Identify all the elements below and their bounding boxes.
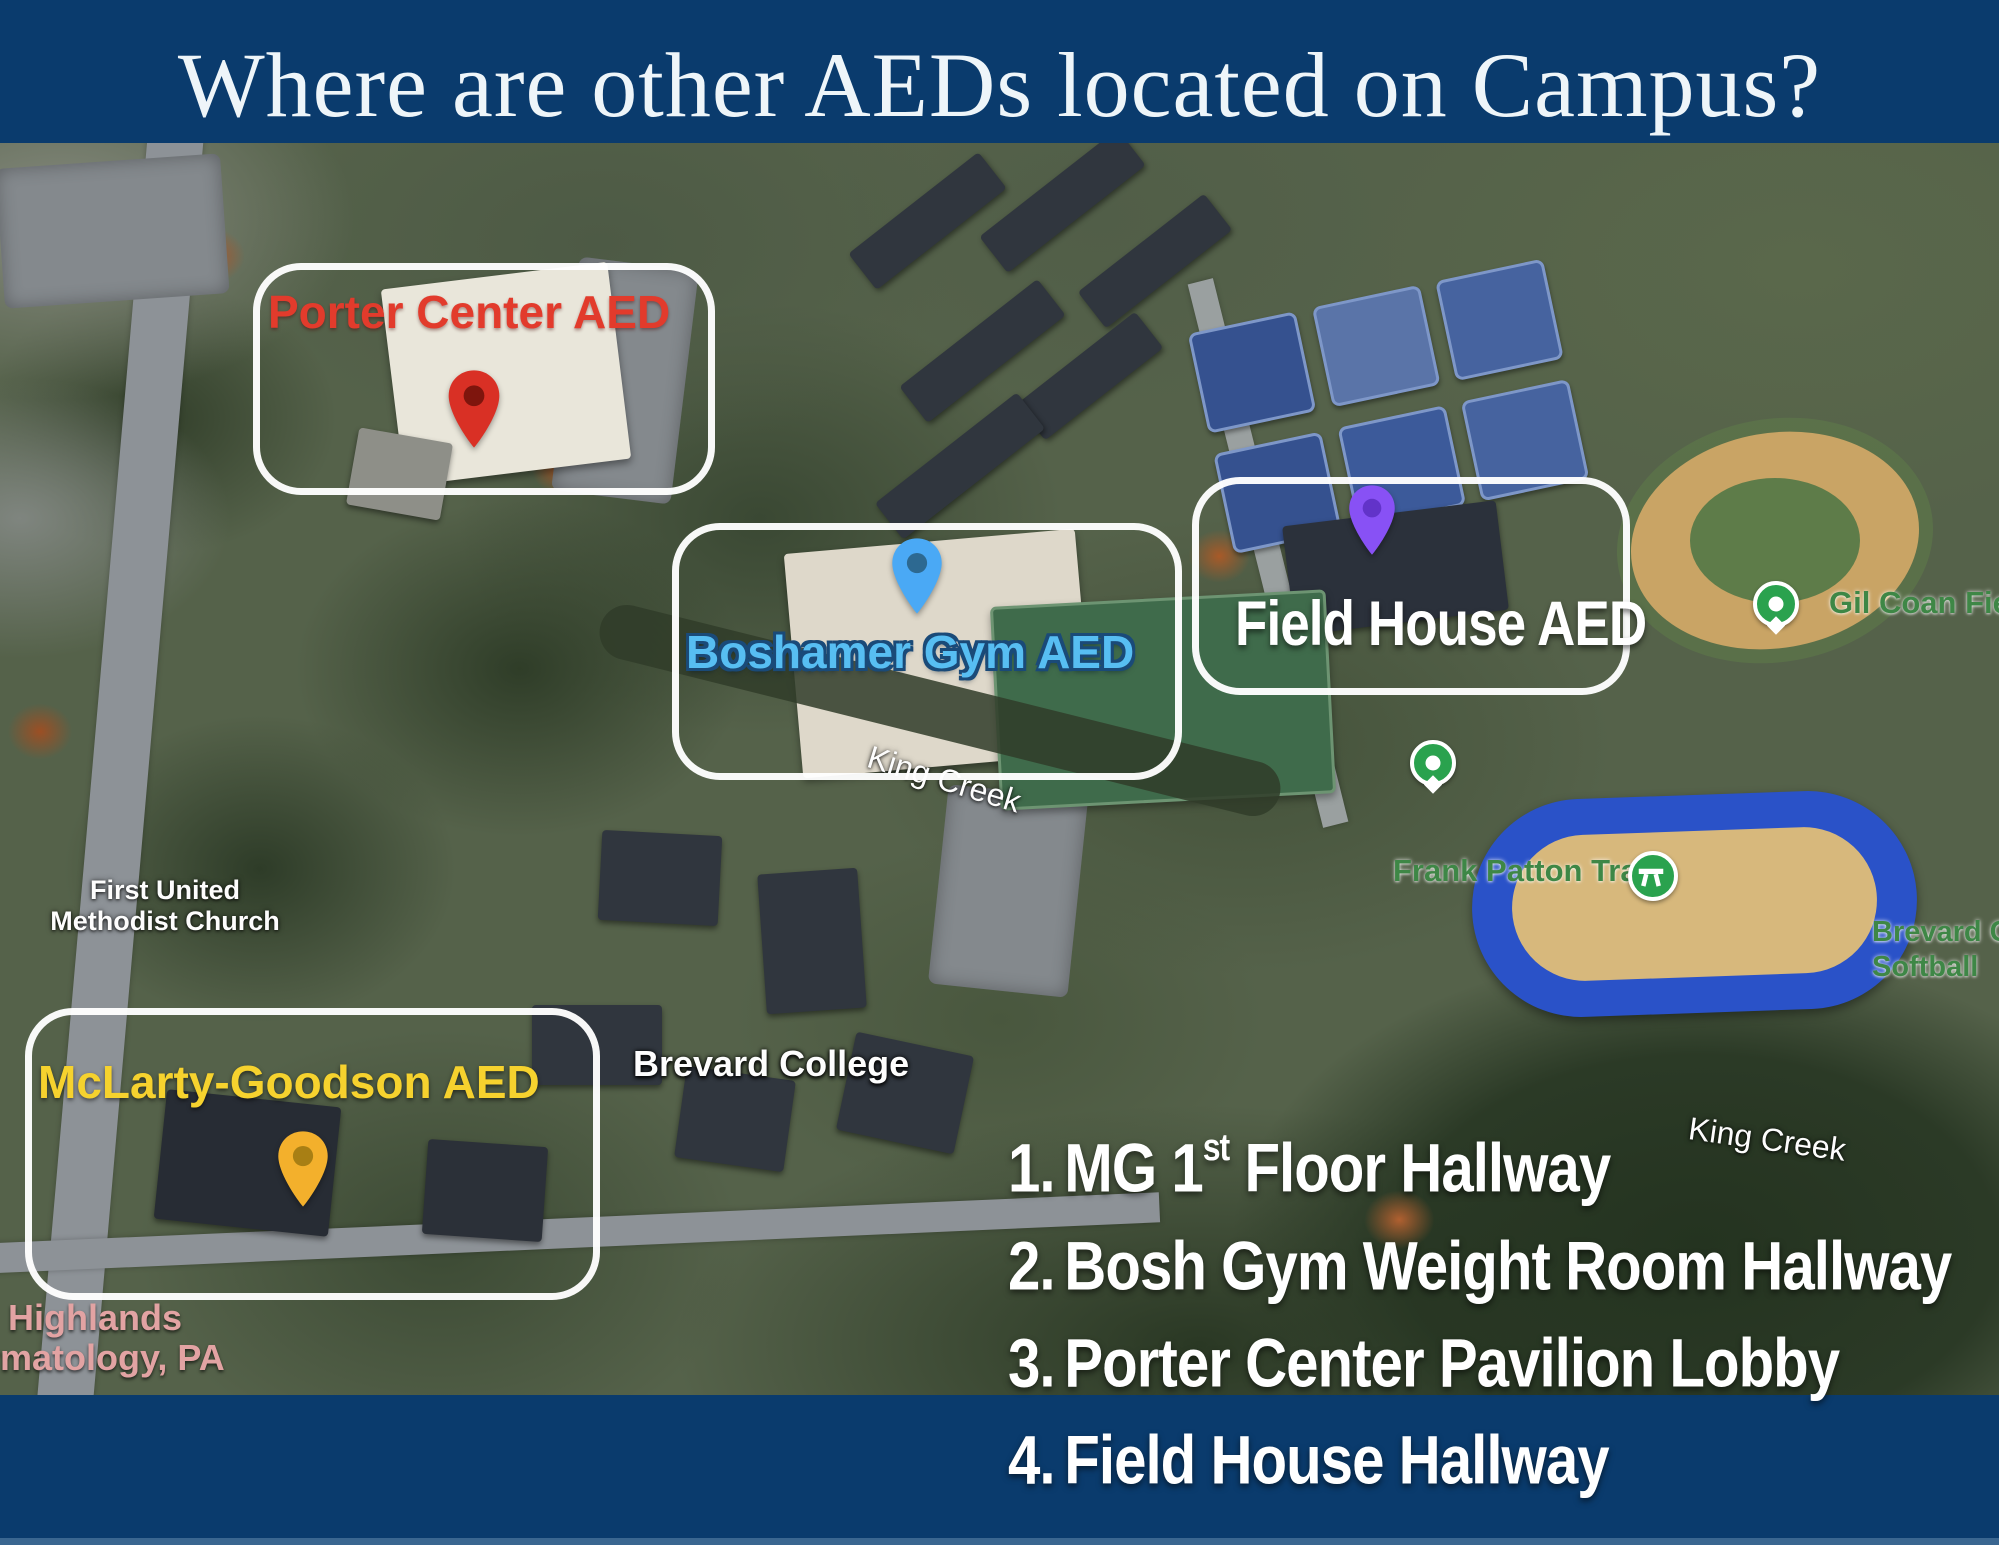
highlands-label-line2: rmatology, PA [0, 1338, 225, 1378]
church-label-line2: Methodist Church [45, 906, 285, 937]
campus-satellite-map: First United Methodist Church Brevard Co… [0, 143, 1999, 1395]
list-text: Field House Hallway [1064, 1420, 1608, 1499]
list-number: 1. [1008, 1128, 1055, 1207]
brevard-college-label: Brevard College [633, 1043, 909, 1085]
highlands-dermatology-label: Highlands rmatology, PA [0, 1298, 225, 1378]
picnic-table-icon [1630, 853, 1672, 895]
boshamer-aed-pin-icon [885, 536, 949, 616]
list-text: Porter Center Pavilion Lobby [1064, 1323, 1839, 1402]
aed-campus-poster: Where are other AEDs located on Campus? [0, 0, 1999, 1545]
bottom-edge-strip [0, 1538, 1999, 1545]
aed-list-item-3: 3. Porter Center Pavilion Lobby [1008, 1323, 1839, 1402]
fieldhouse-aed-pin-icon [1346, 481, 1398, 559]
softball-field-label: Brevard C Softball [1872, 915, 1999, 985]
list-number: 3. [1008, 1323, 1055, 1402]
ordinal-suffix: st [1203, 1126, 1230, 1169]
list-text: Bosh Gym Weight Room Hallway [1064, 1226, 1951, 1305]
campus-building [598, 830, 723, 926]
list-text: MG 1st Floor Hallway [1064, 1128, 1610, 1207]
boshamer-zone-label: Boshamer Gym AED [686, 625, 1134, 679]
road-marker-icon [1410, 740, 1456, 786]
softball-label-line1: Brevard C [1872, 915, 1999, 950]
tennis-court [1188, 311, 1317, 434]
marker-dot [1426, 756, 1441, 771]
list-number: 4. [1008, 1420, 1055, 1499]
aed-list-item-2: 2. Bosh Gym Weight Room Hallway [1008, 1226, 1951, 1305]
aed-list-item-4: 4. Field House Hallway [1008, 1420, 1609, 1499]
marker-dot [1769, 597, 1784, 612]
track-infield [1510, 825, 1880, 984]
porter-aed-pin-icon [445, 368, 503, 450]
church-label-line1: First United [45, 875, 285, 906]
porter-zone-label: Porter Center AED [268, 285, 670, 339]
dorm-building [979, 143, 1145, 273]
aed-list-item-1: 1. MG 1st Floor Hallway [1008, 1128, 1610, 1207]
church-label: First United Methodist Church [45, 875, 285, 937]
page-title: Where are other AEDs located on Campus? [0, 32, 1999, 138]
fieldhouse-zone-label: Field House AED [1235, 588, 1646, 661]
dorm-building [848, 152, 1006, 290]
list-number: 2. [1008, 1226, 1055, 1305]
king-creek-right-label: King Creek [1686, 1110, 1848, 1169]
marker-tail [1424, 775, 1442, 793]
mclarty-aed-pin-icon [270, 1129, 336, 1209]
highlands-label-line1: Highlands [0, 1298, 225, 1338]
campus-building [757, 868, 867, 1015]
softball-label-line2: Softball [1872, 950, 1999, 985]
title-band: Where are other AEDs located on Campus? [0, 0, 1999, 143]
gil-coan-field-label: Gil Coan Fiel [1829, 585, 1999, 621]
dorm-building [875, 392, 1045, 539]
fieldhouse-zone-box [1192, 477, 1630, 695]
parking-lot-topleft [0, 153, 230, 308]
frank-patton-marker-icon [1628, 851, 1678, 901]
tennis-court [1435, 258, 1564, 381]
bottom-band [0, 1395, 1999, 1545]
gil-coan-marker-icon [1753, 581, 1799, 627]
tennis-court [1312, 285, 1441, 408]
mclarty-zone-label: McLarty-Goodson AED [38, 1055, 540, 1109]
